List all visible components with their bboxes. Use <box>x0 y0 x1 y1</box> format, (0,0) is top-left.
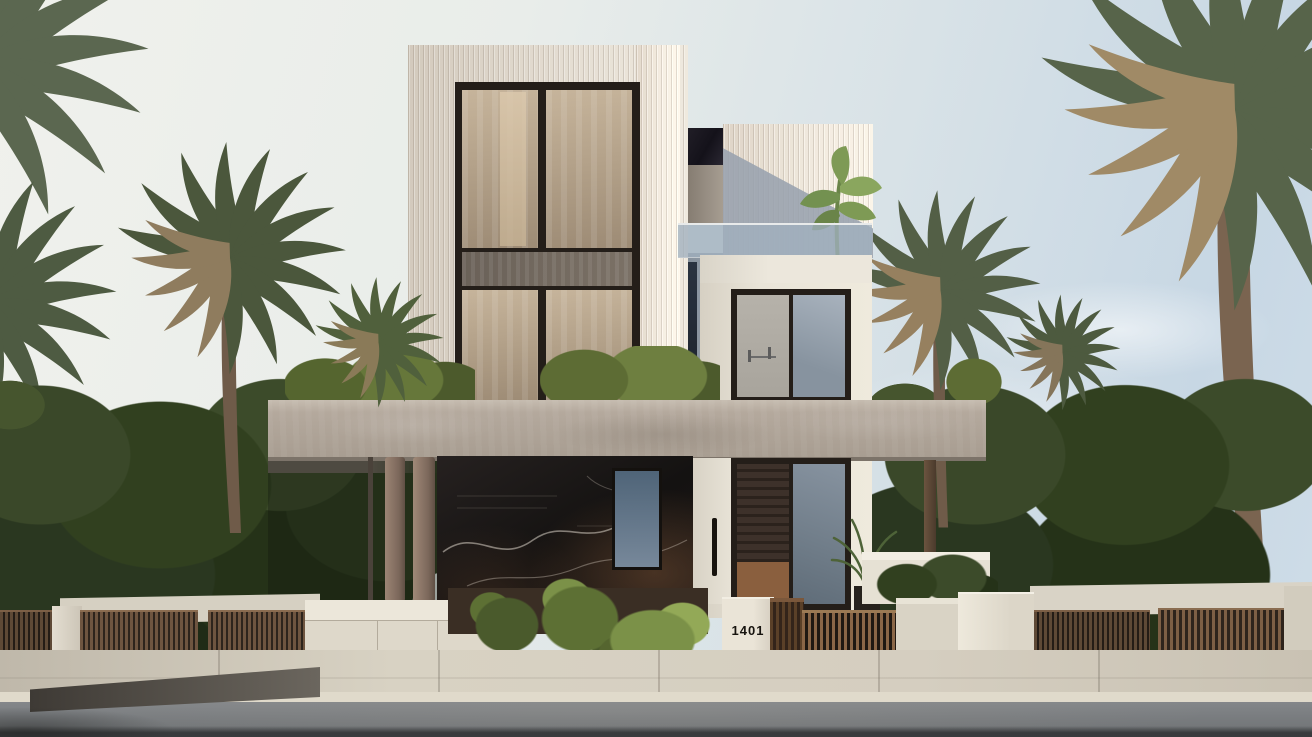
villa-exterior-render: 1401 <box>0 0 1312 737</box>
roof-bush-center <box>540 346 720 406</box>
tree-shadow-road-left <box>0 700 280 737</box>
entrance-upper-left-pane <box>737 295 789 397</box>
palm-tree-small-right-icon <box>991 281 1134 495</box>
interior-wall-fixture-2 <box>748 350 751 362</box>
window-upper-right-pane <box>546 90 632 248</box>
house-number-plate: 1401 <box>722 623 774 638</box>
palm-tree-small-left-icon <box>298 262 459 503</box>
marble-window <box>612 468 662 570</box>
interior-wall-fixture <box>750 356 776 358</box>
balcony-glass-balustrade <box>678 223 872 258</box>
entrance-upper-right-pane <box>793 295 845 397</box>
curtain-highlight <box>500 92 526 246</box>
interior-wall-fixture-3 <box>768 347 771 359</box>
door-handle <box>712 518 717 576</box>
window-spandrel-band <box>462 252 632 286</box>
entrance-lower-left-pane <box>737 464 789 604</box>
balcony-slab-band <box>700 255 872 284</box>
